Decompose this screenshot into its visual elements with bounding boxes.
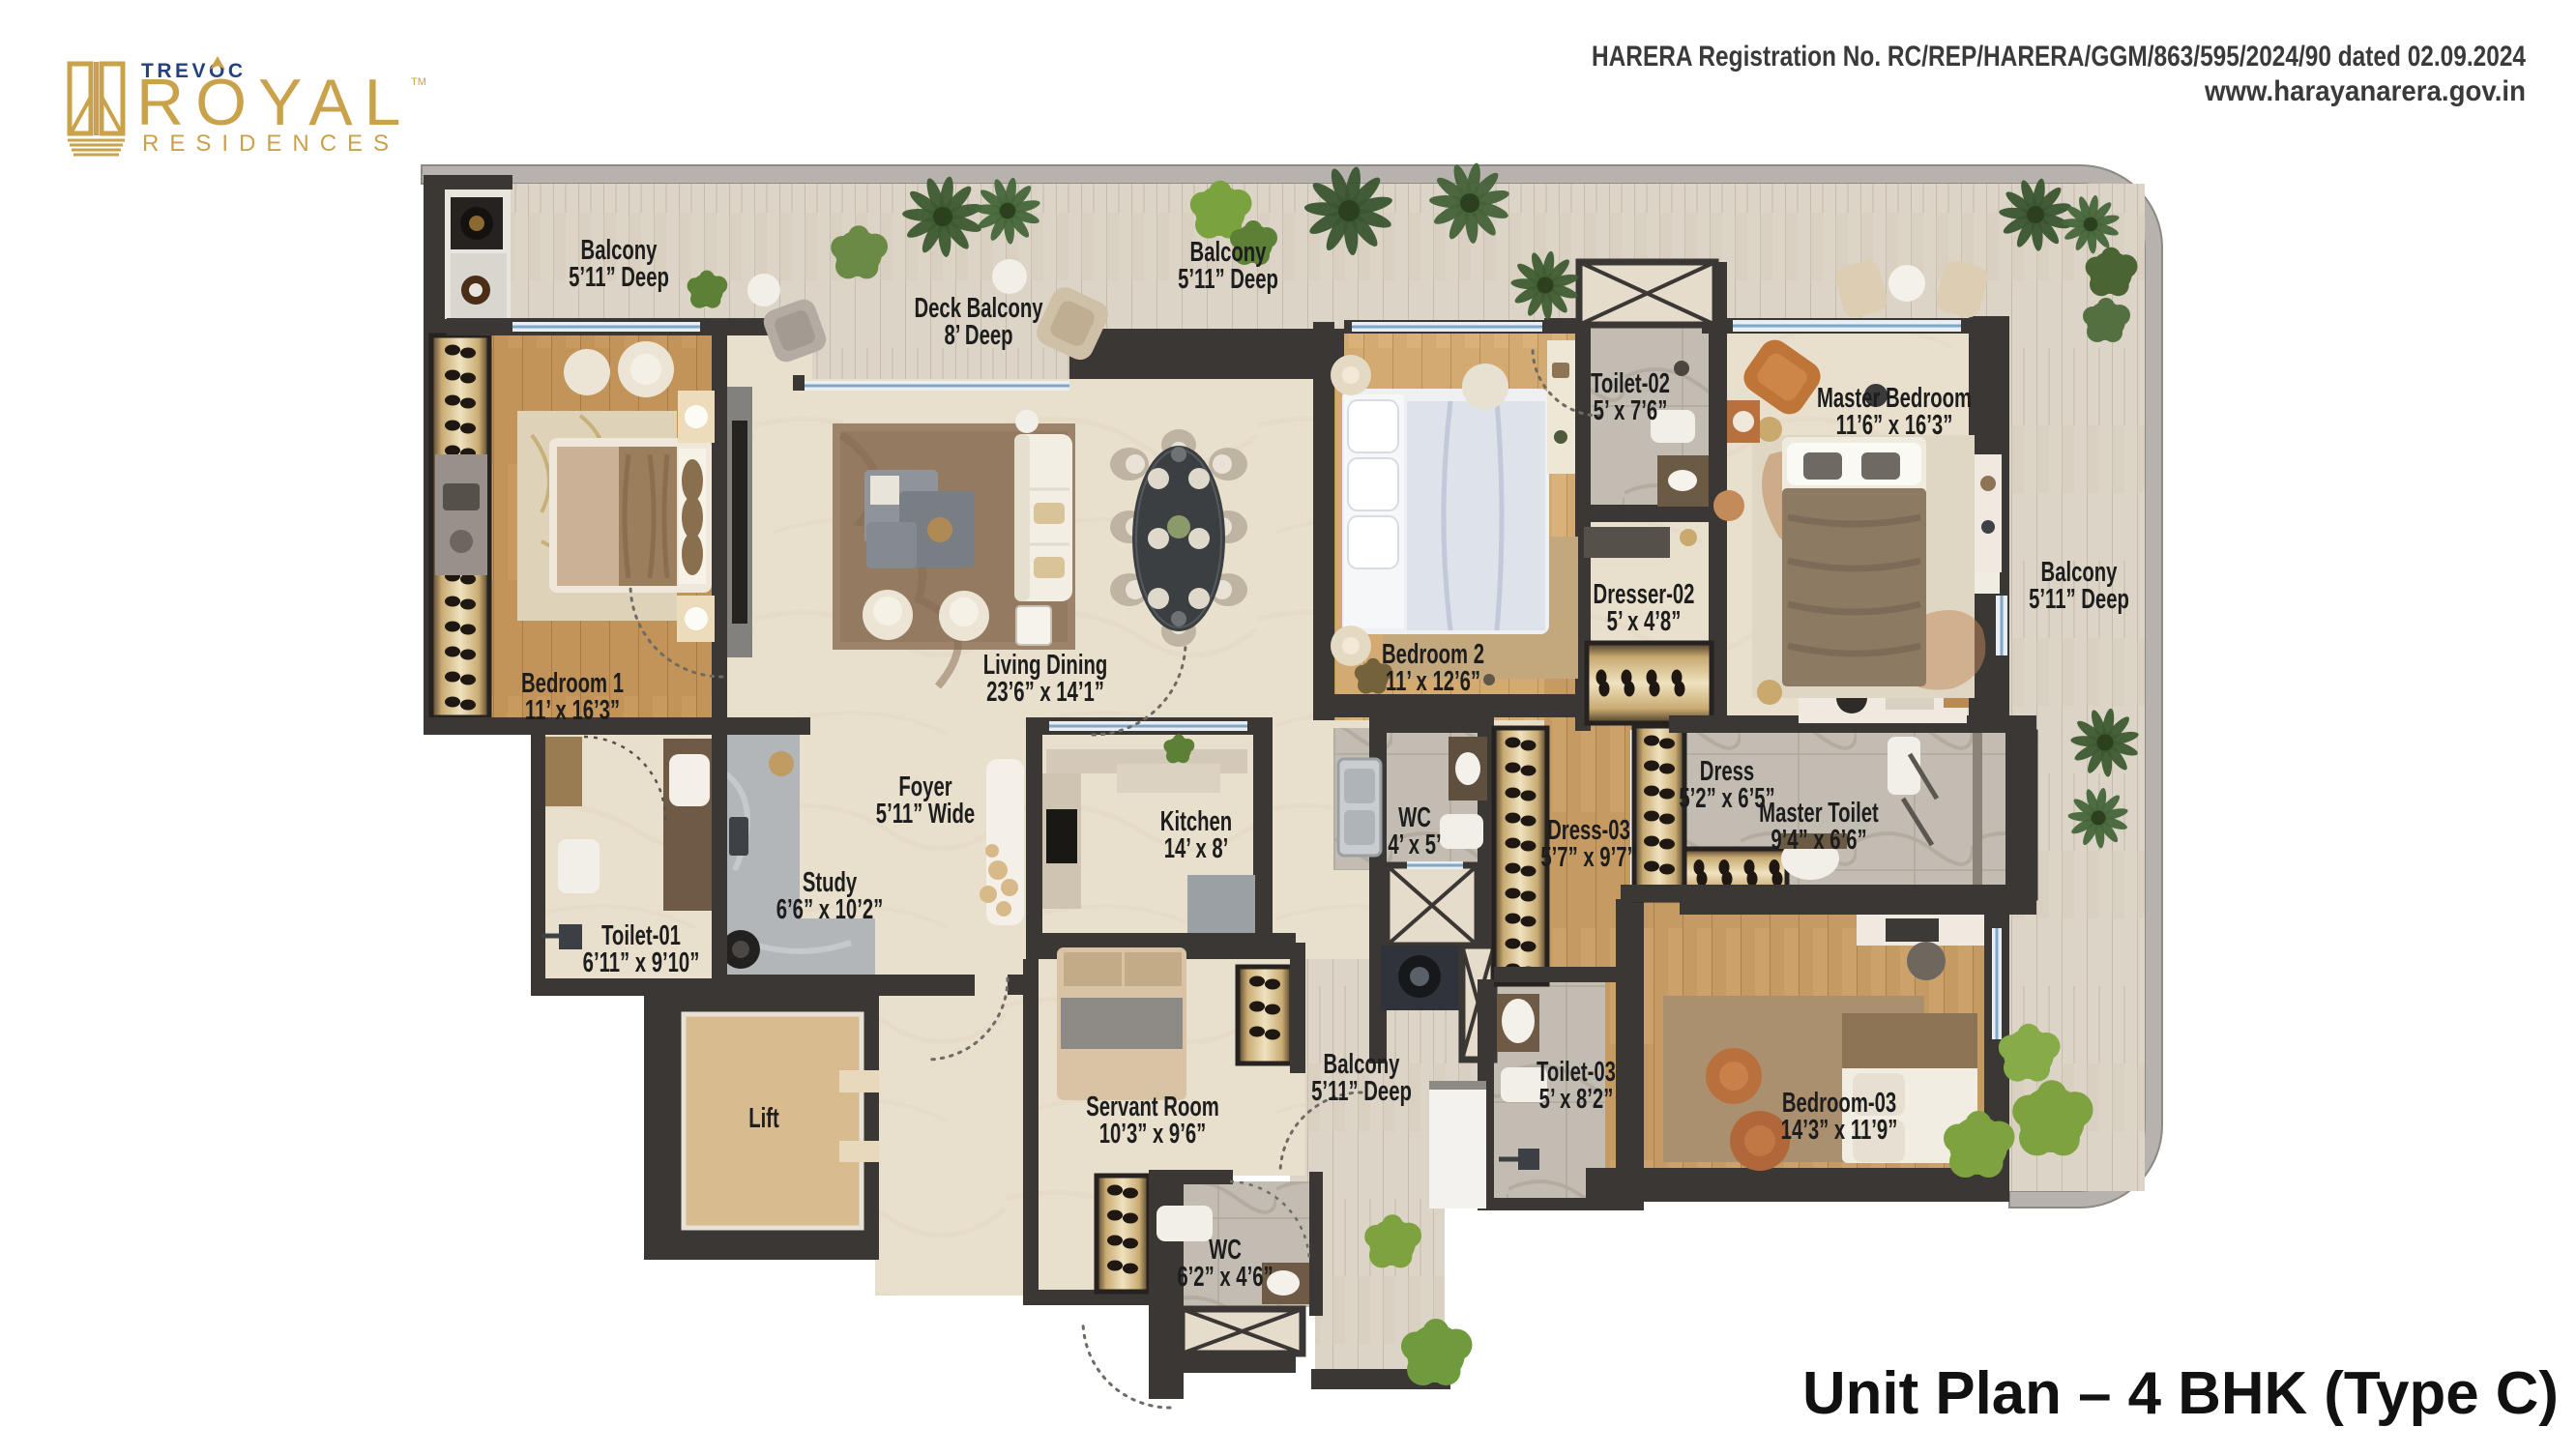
svg-text:TM: TM (411, 76, 426, 88)
svg-text:Lift: Lift (748, 1103, 779, 1134)
svg-text:23’6” x 14’1”: 23’6” x 14’1” (986, 677, 1104, 708)
svg-text:5’ x 4’8”: 5’ x 4’8” (1607, 606, 1682, 637)
svg-text:14’3” x 11’9”: 14’3” x 11’9” (1781, 1115, 1898, 1146)
svg-text:11’6” x 16’3”: 11’6” x 16’3” (1836, 410, 1953, 441)
svg-text:6’6” x 10’2”: 6’6” x 10’2” (776, 894, 884, 925)
svg-text:4’ x 5’: 4’ x 5’ (1388, 830, 1441, 860)
svg-text:Unit Plan – 4 BHK (Type C): Unit Plan – 4 BHK (Type C) (1802, 1360, 2559, 1427)
svg-text:11’ x 12’6”: 11’ x 12’6” (1386, 666, 1480, 697)
svg-text:6’2” x 4’6”: 6’2” x 4’6” (1177, 1262, 1273, 1293)
svg-text:5’11” Deep: 5’11” Deep (1178, 264, 1278, 295)
svg-text:9’4” x 6’6”: 9’4” x 6’6” (1771, 825, 1866, 856)
svg-text:HARERA Registration No. RC/REP: HARERA Registration No. RC/REP/HARERA/GG… (1592, 41, 2526, 73)
svg-text:RESIDENCES: RESIDENCES (142, 131, 399, 157)
svg-text:6’11” x 9’10”: 6’11” x 9’10” (583, 947, 700, 978)
svg-text:ROYAL: ROYAL (136, 66, 412, 139)
svg-text:5’11” Deep: 5’11” Deep (569, 262, 669, 293)
svg-text:5’11” Deep: 5’11” Deep (1311, 1076, 1412, 1107)
svg-text:5’ x 7’6”: 5’ x 7’6” (1594, 395, 1668, 426)
svg-text:8’ Deep: 8’ Deep (944, 320, 1012, 351)
svg-text:5’11” Deep: 5’11” Deep (2029, 584, 2129, 615)
svg-text:14’ x 8’: 14’ x 8’ (1164, 833, 1229, 864)
svg-text:5’7” x 9’7”: 5’7” x 9’7” (1540, 842, 1636, 873)
svg-text:11’ x 16’3”: 11’ x 16’3” (525, 695, 620, 726)
svg-text:10’3” x 9’6”: 10’3” x 9’6” (1099, 1119, 1207, 1150)
svg-text:5’ x 8’2”: 5’ x 8’2” (1539, 1084, 1614, 1115)
svg-text:www.harayanarera.gov.in: www.harayanarera.gov.in (2204, 75, 2526, 107)
svg-text:5’11” Wide: 5’11” Wide (876, 799, 975, 830)
